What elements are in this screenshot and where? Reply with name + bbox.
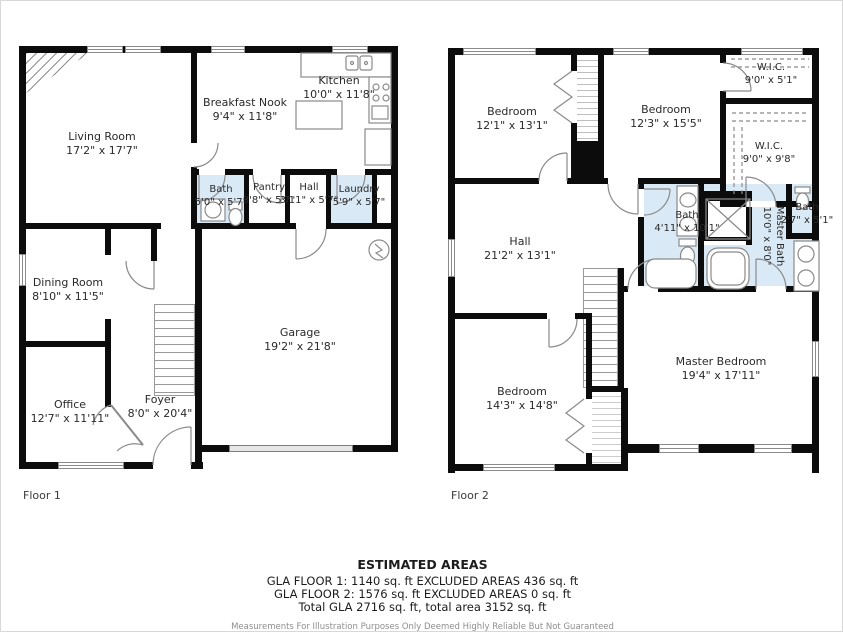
room-label-bath: Bath 2'7" x 5'1" bbox=[781, 202, 833, 228]
room-dims: 5'9" x 5'7" bbox=[333, 197, 385, 210]
kitchen-sink-icon bbox=[360, 56, 372, 70]
bath-floor-fill bbox=[644, 184, 698, 291]
room-label-wic: W.I.C. 9'0" x 9'8" bbox=[743, 141, 795, 167]
staircase-floor1 bbox=[154, 304, 195, 396]
room-dims: 12'7" x 11'11" bbox=[31, 412, 110, 426]
room-dims: 9'0" x 5'1" bbox=[745, 75, 797, 88]
closet-interior bbox=[592, 391, 621, 464]
room-label-bedroom: Bedroom 12'3" x 15'5" bbox=[630, 103, 702, 131]
room-label-bath: Bath 4'11" x 10'1" bbox=[654, 210, 719, 236]
door-arc bbox=[117, 444, 143, 451]
door-arc bbox=[126, 261, 154, 289]
floor1-tag: Floor 1 bbox=[23, 489, 61, 502]
room-name: Breakfast Nook bbox=[203, 96, 287, 110]
door-opening bbox=[253, 169, 281, 175]
room-label-laundry: Laundry 5'9" x 5'7" bbox=[333, 184, 385, 210]
room-label-foyer: Foyer 8'0" x 20'4" bbox=[128, 393, 193, 421]
room-name: Dining Room bbox=[32, 276, 104, 290]
window bbox=[19, 254, 26, 286]
room-label-hall: Hall 21'2" x 13'1" bbox=[484, 235, 556, 263]
door-opening bbox=[608, 178, 638, 184]
room-name: Bath bbox=[781, 202, 833, 215]
room-name: W.I.C. bbox=[745, 62, 797, 75]
door-opening bbox=[337, 169, 365, 175]
oven-icon bbox=[372, 106, 388, 119]
wall bbox=[195, 229, 202, 469]
window bbox=[448, 239, 455, 277]
wall bbox=[621, 388, 628, 471]
room-name: Bath bbox=[195, 184, 247, 197]
chase-shaft bbox=[577, 55, 598, 141]
wall bbox=[19, 223, 398, 229]
wall bbox=[698, 184, 704, 291]
room-dims: 17'2" x 17'7" bbox=[66, 144, 138, 158]
summary-total-gla: Total GLA 2716 sq. ft, total area 3152 s… bbox=[1, 601, 843, 613]
faucet-dot bbox=[365, 62, 368, 65]
wall bbox=[698, 191, 752, 197]
room-label-bedroom: Bedroom 12'1" x 13'1" bbox=[476, 105, 548, 133]
faucet-dot bbox=[351, 62, 354, 65]
room-dims: 8'0" x 20'4" bbox=[128, 407, 193, 421]
wall bbox=[19, 341, 111, 347]
room-label-dining-room: Dining Room 8'10" x 11'5" bbox=[32, 276, 104, 304]
room-name: Master Bedroom bbox=[676, 355, 767, 369]
refrigerator-icon bbox=[365, 129, 391, 165]
room-label-wic: W.I.C. 9'0" x 5'1" bbox=[745, 62, 797, 88]
window bbox=[659, 444, 699, 453]
door-opening bbox=[296, 223, 326, 229]
window bbox=[332, 46, 368, 53]
window bbox=[741, 48, 803, 55]
room-label-bath: Bath 5'0" x 5'7" bbox=[195, 184, 247, 210]
door-arc bbox=[539, 153, 567, 181]
room-dims: 19'4" x 17'11" bbox=[676, 369, 767, 383]
door-arc bbox=[296, 229, 326, 259]
room-name: Bath bbox=[654, 210, 719, 223]
room-dims: 10'0" x 11'8" bbox=[303, 88, 375, 102]
window bbox=[125, 46, 161, 53]
master-bath-floor-fill bbox=[704, 245, 752, 291]
wall bbox=[812, 48, 819, 473]
estimated-areas-block: ESTIMATED AREAS GLA FLOOR 1: 1140 sq. ft… bbox=[1, 557, 843, 632]
wall bbox=[105, 229, 111, 255]
door-opening bbox=[199, 169, 225, 175]
room-dims: 3'11" x 5'7" bbox=[280, 195, 339, 208]
room-dims: 5'0" x 5'7" bbox=[195, 197, 247, 210]
room-name: Hall bbox=[484, 235, 556, 249]
floor-plan-image: Living Room 17'2" x 17'7" Breakfast Nook… bbox=[0, 0, 843, 632]
room-dims: 21'2" x 13'1" bbox=[484, 249, 556, 263]
room-name: W.I.C. bbox=[743, 141, 795, 154]
door-arc bbox=[194, 143, 218, 167]
sloped-ceiling-hatch bbox=[26, 53, 90, 93]
door-opening bbox=[153, 462, 191, 469]
room-label-breakfast-nook: Breakfast Nook 9'4" x 11'8" bbox=[203, 96, 287, 124]
window bbox=[754, 444, 792, 453]
room-dims: 14'3" x 14'8" bbox=[486, 399, 558, 413]
door-arc bbox=[153, 427, 191, 465]
wall bbox=[105, 319, 111, 347]
stove-burner-icon bbox=[383, 84, 389, 90]
window bbox=[58, 462, 124, 469]
room-name: Bedroom bbox=[476, 105, 548, 119]
wall bbox=[151, 229, 157, 261]
room-dims: 8'10" x 11'5" bbox=[32, 290, 104, 304]
water-heater-icon bbox=[375, 244, 383, 258]
door-opening bbox=[191, 143, 197, 167]
floor2-tag: Floor 2 bbox=[451, 489, 489, 502]
window bbox=[211, 46, 245, 53]
door-opening bbox=[720, 63, 726, 91]
window bbox=[613, 48, 649, 55]
room-label-kitchen: Kitchen 10'0" x 11'8" bbox=[303, 74, 375, 102]
fixtures-overlay bbox=[1, 1, 843, 632]
stove-burner-icon bbox=[383, 95, 389, 101]
wall bbox=[786, 233, 819, 239]
garage-door bbox=[229, 445, 353, 452]
room-label-living-room: Living Room 17'2" x 17'7" bbox=[66, 130, 138, 158]
wall bbox=[726, 98, 819, 104]
room-dims: 9'4" x 11'8" bbox=[203, 110, 287, 124]
door-opening bbox=[539, 178, 567, 184]
room-dims: 2'7" x 5'1" bbox=[781, 215, 833, 228]
wall bbox=[586, 386, 624, 392]
door-opening bbox=[161, 223, 191, 229]
bifold-door-icon bbox=[554, 71, 572, 123]
kitchen-island bbox=[296, 101, 342, 129]
summary-gla-floor1: GLA FLOOR 1: 1140 sq. ft EXCLUDED AREAS … bbox=[1, 575, 843, 587]
summary-disclaimer: Measurements For Illustration Purposes O… bbox=[1, 622, 843, 632]
door-arc bbox=[549, 319, 577, 347]
door-opening bbox=[638, 189, 644, 217]
door-opening bbox=[756, 286, 786, 292]
room-name: Bedroom bbox=[486, 385, 558, 399]
room-label-bedroom: Bedroom 14'3" x 14'8" bbox=[486, 385, 558, 413]
room-label-master-bedroom: Master Bedroom 19'4" x 17'11" bbox=[676, 355, 767, 383]
room-name: Office bbox=[31, 398, 110, 412]
water-heater-icon bbox=[369, 240, 389, 260]
summary-title: ESTIMATED AREAS bbox=[1, 557, 843, 572]
door-opening bbox=[628, 286, 658, 292]
room-dims: 12'3" x 15'5" bbox=[630, 117, 702, 131]
room-dims: 19'2" x 21'8" bbox=[264, 340, 336, 354]
room-label-office: Office 12'7" x 11'11" bbox=[31, 398, 110, 426]
bifold-door-icon bbox=[566, 399, 584, 453]
room-dims: 4'11" x 10'1" bbox=[654, 223, 719, 236]
wall bbox=[391, 46, 398, 452]
window bbox=[812, 341, 819, 377]
room-name: Laundry bbox=[333, 184, 385, 197]
kitchen-sink-icon bbox=[346, 56, 358, 70]
window bbox=[87, 46, 123, 53]
door-arc bbox=[608, 184, 638, 214]
room-name: Garage bbox=[264, 326, 336, 340]
room-name: Foyer bbox=[128, 393, 193, 407]
window bbox=[483, 464, 555, 471]
room-label-garage: Garage 19'2" x 21'8" bbox=[264, 326, 336, 354]
room-name: Hall bbox=[280, 182, 339, 195]
room-dims: 9'0" x 9'8" bbox=[743, 154, 795, 167]
room-label-hall: Hall 3'11" x 5'7" bbox=[280, 182, 339, 208]
room-name: Living Room bbox=[66, 130, 138, 144]
door-opening bbox=[571, 71, 577, 123]
door-opening bbox=[586, 399, 592, 453]
door-opening bbox=[547, 313, 575, 319]
summary-gla-floor2: GLA FLOOR 2: 1576 sq. ft EXCLUDED AREAS … bbox=[1, 588, 843, 600]
room-name: Bedroom bbox=[630, 103, 702, 117]
window bbox=[463, 48, 536, 55]
room-dims: 12'1" x 13'1" bbox=[476, 119, 548, 133]
room-name: Kitchen bbox=[303, 74, 375, 88]
room-dims: 10'0" x 8'0" bbox=[759, 206, 772, 267]
